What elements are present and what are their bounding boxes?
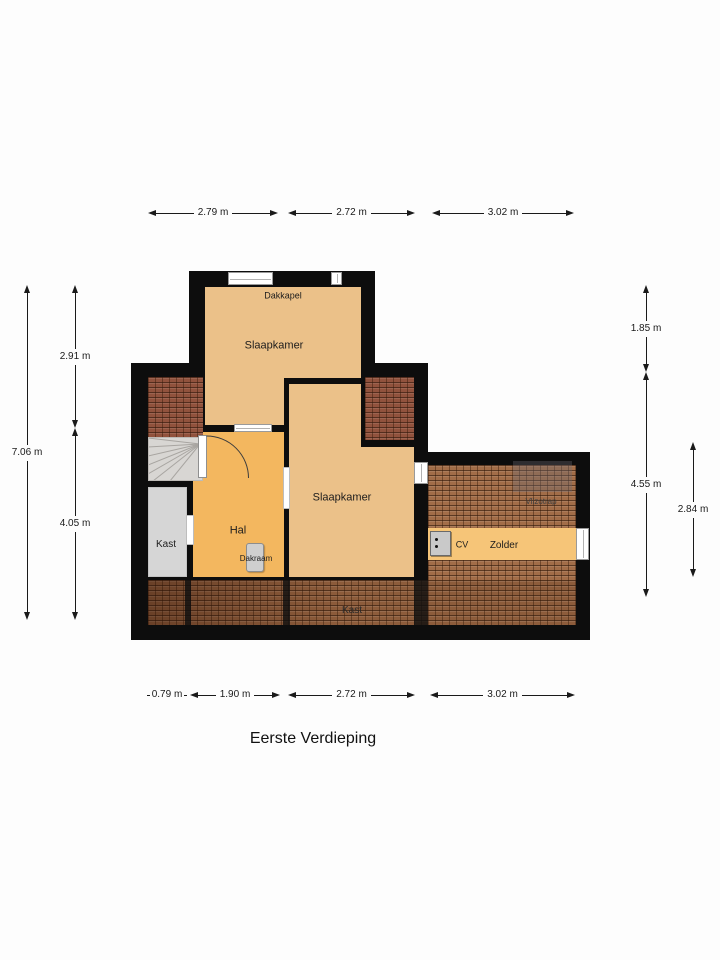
dimension-right-upper: 1.85 m <box>626 285 666 372</box>
roof-tiles-left-patch <box>148 377 203 437</box>
label-kast-left: Kast <box>156 540 176 550</box>
label-zolder: Zolder <box>490 541 518 551</box>
label-kast-bottom: Kast <box>342 606 362 616</box>
dimension-bottom-2: 1.90 m <box>190 689 280 701</box>
arrow-up-icon <box>72 285 78 293</box>
dimension-right-zolder: 2.84 m <box>673 442 713 577</box>
arrow-right-icon <box>566 210 574 216</box>
wall-continuation-right <box>414 580 428 625</box>
arrow-up-icon <box>24 285 30 293</box>
roof-tiles-topright-patch <box>365 377 414 440</box>
wall-continuation-kast <box>185 580 191 625</box>
dimension-bottom-1: 0.79 m <box>147 689 187 701</box>
window-zolder-right <box>576 528 589 560</box>
dimension-label: 1.85 m <box>631 321 662 337</box>
wall-continuation-hal <box>283 580 290 625</box>
room-kast-left <box>148 487 187 577</box>
label-vlizotrap: Vlizotrap <box>525 498 556 506</box>
arrow-down-icon <box>690 569 696 577</box>
window-slaapkamer-zolder-wall <box>414 462 428 484</box>
arrow-right-icon <box>272 692 280 698</box>
arrow-right-icon <box>270 210 278 216</box>
arrow-left-icon <box>190 692 198 698</box>
dimension-label: 3.02 m <box>484 208 523 218</box>
label-hal: Hal <box>230 526 247 537</box>
arrow-left-icon <box>430 692 438 698</box>
label-slaapkamer-top: Slaapkamer <box>245 341 304 352</box>
cv-unit <box>430 531 451 556</box>
dimension-label: 4.05 m <box>60 516 91 532</box>
dimension-label: 3.02 m <box>483 690 522 700</box>
dimension-label: 2.79 m <box>194 208 233 218</box>
dimension-label: 4.55 m <box>631 477 662 493</box>
dimension-left-upper: 2.91 m <box>55 285 95 428</box>
label-dakraam: Dakraam <box>240 555 272 563</box>
arrow-up-icon <box>690 442 696 450</box>
dimension-label: 0.79 m <box>150 690 185 700</box>
room-slaapkamer-top-left-part <box>205 287 284 425</box>
arrow-left-icon <box>432 210 440 216</box>
roof-tiles-bottom-strip <box>148 580 576 625</box>
room-slaapkamer-top-right-part <box>284 287 361 378</box>
door-hal <box>194 430 256 486</box>
vlizotrap-hatch-overlay <box>513 461 572 492</box>
door-swing-icon <box>194 430 256 486</box>
arrow-left-icon <box>148 210 156 216</box>
label-dakkapel: Dakkapel <box>264 292 302 301</box>
dakkapel-window-small <box>331 272 342 285</box>
arrow-up-icon <box>643 285 649 293</box>
arrow-left-icon <box>288 692 296 698</box>
dimension-bottom-4: 3.02 m <box>430 689 575 701</box>
label-slaapkamer-mid: Slaapkamer <box>313 493 372 504</box>
arrow-right-icon <box>407 692 415 698</box>
arrow-down-icon <box>643 364 649 372</box>
door-kast-left <box>186 515 194 545</box>
dimension-left-total: 7.06 m <box>7 285 47 620</box>
floor-plan-page: Dakkapel Slaapkamer Slaapkamer Hal Kast … <box>0 0 720 960</box>
arrow-right-icon <box>407 210 415 216</box>
arrow-down-icon <box>24 612 30 620</box>
arrow-down-icon <box>72 612 78 620</box>
dimension-bottom-3: 2.72 m <box>288 689 415 701</box>
dimension-label: 7.06 m <box>12 445 43 461</box>
dimension-top-3: 3.02 m <box>432 207 574 219</box>
dimension-label: 2.72 m <box>332 690 371 700</box>
window-slaapkamer-hal-wall <box>234 424 272 432</box>
arrow-down-icon <box>643 589 649 597</box>
dimension-label: 1.90 m <box>216 690 255 700</box>
room-slaapkamer-mid-main-part <box>289 447 414 577</box>
arrow-right-icon <box>567 692 575 698</box>
dimension-label: 2.84 m <box>678 502 709 518</box>
arrow-up-icon <box>643 372 649 380</box>
arrow-left-icon <box>288 210 296 216</box>
dimension-left-lower: 4.05 m <box>55 428 95 620</box>
dimension-label: 2.91 m <box>60 349 91 365</box>
label-cv: CV <box>456 541 469 550</box>
dakkapel-window-large <box>228 272 273 285</box>
arrow-down-icon <box>72 420 78 428</box>
dimension-right-lower: 4.55 m <box>626 372 666 597</box>
dimension-top-1: 2.79 m <box>148 207 278 219</box>
arrow-up-icon <box>72 428 78 436</box>
dimension-label: 2.72 m <box>332 208 371 218</box>
opening-hal-slaapkamer-wall <box>283 467 290 509</box>
page-title: Eerste Verdieping <box>250 730 376 748</box>
dimension-top-2: 2.72 m <box>288 207 415 219</box>
